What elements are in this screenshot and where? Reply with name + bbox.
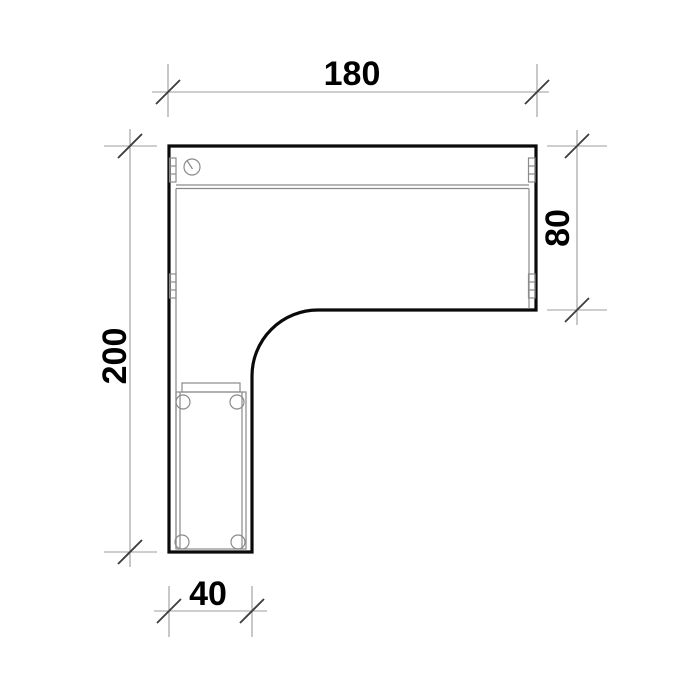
dimension-bottom: 40 [154, 575, 267, 637]
dimension-top: 180 [152, 55, 549, 117]
caster-icon [231, 535, 245, 549]
desk-details [170, 158, 536, 549]
desk-top-outline [169, 146, 536, 552]
dimension-label-bottom: 40 [189, 575, 227, 613]
pedestal [175, 383, 246, 549]
pedestal-back-panel [182, 383, 240, 392]
pedestal-body [176, 392, 246, 549]
cable-grommet-icon [184, 159, 200, 175]
dimension-label-top: 180 [324, 55, 381, 93]
dimension-right: 80 [539, 130, 607, 325]
dimension-left: 200 [96, 129, 157, 567]
hinge-right-top [529, 158, 536, 182]
dimension-label-right: 80 [539, 209, 577, 247]
dimension-label-left: 200 [96, 328, 134, 385]
caster-icon [176, 395, 190, 409]
desk-outline [169, 146, 536, 552]
technical-drawing: 180 200 80 40 [0, 0, 700, 700]
caster-icon [175, 535, 189, 549]
cable-grommet-notch [187, 161, 193, 170]
